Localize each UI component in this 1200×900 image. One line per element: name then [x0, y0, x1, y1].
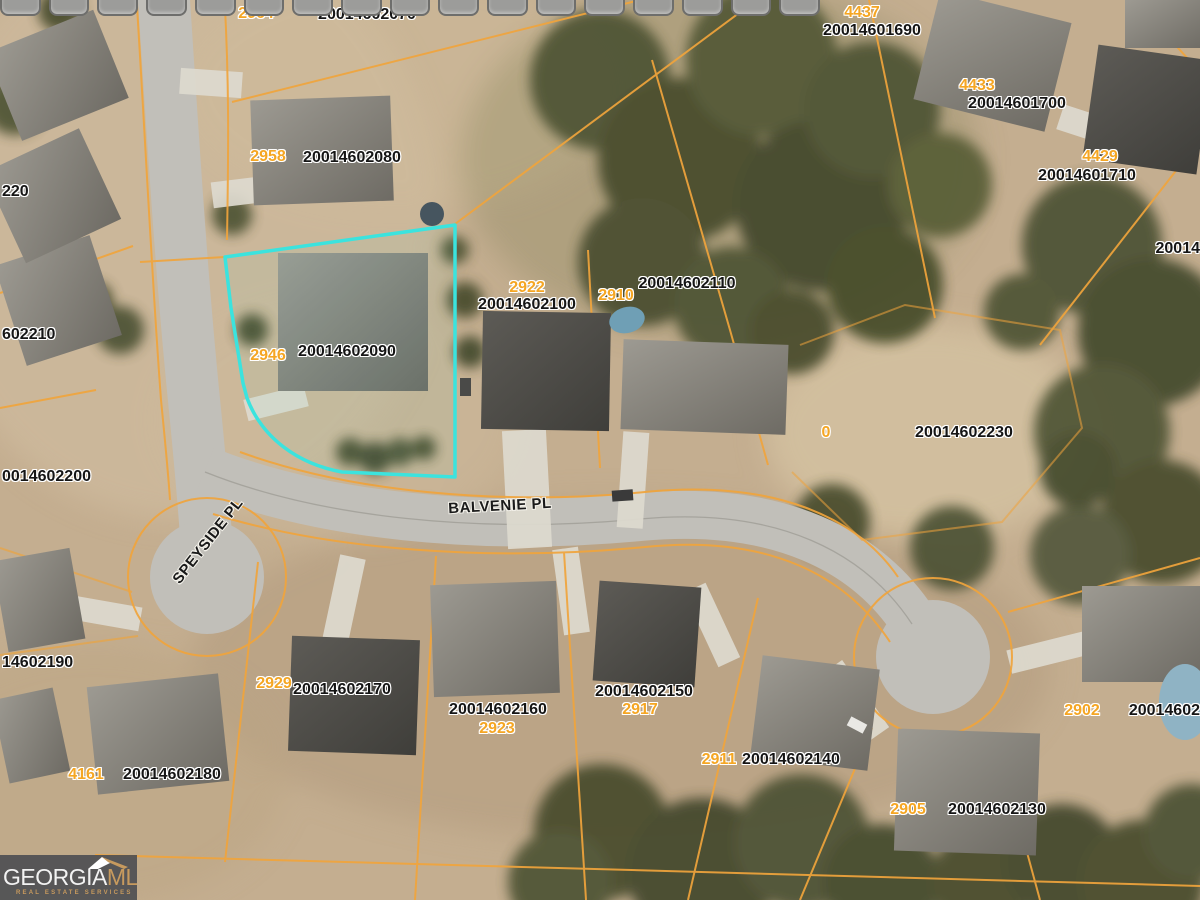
- toolbar-button[interactable]: [731, 0, 772, 16]
- toolbar-button[interactable]: [779, 0, 820, 16]
- toolbar-button[interactable]: [487, 0, 528, 16]
- parcel-id-label: 20014602150: [595, 684, 693, 700]
- parcel-id-label: 20014601710: [1038, 168, 1136, 184]
- house-number-label: 2911: [702, 752, 737, 768]
- toolbar-button[interactable]: [146, 0, 187, 16]
- toolbar-button[interactable]: [0, 0, 41, 16]
- street-name-label: BALVENIE PL: [448, 496, 552, 516]
- parcel-id-label: 20014601690: [823, 23, 921, 39]
- toolbar-button[interactable]: [341, 0, 382, 16]
- toolbar-button[interactable]: [195, 0, 236, 16]
- house-number-label: 2922: [509, 280, 545, 296]
- house-number-label: 2929: [256, 676, 292, 692]
- toolbar-button[interactable]: [390, 0, 431, 16]
- georgiamls-logo: GEORGIAMLS REAL ESTATE SERVICES: [0, 855, 137, 900]
- house-number-label: 2917: [622, 702, 658, 718]
- parcel-id-label: 20014602170: [293, 682, 391, 698]
- toolbar-button[interactable]: [633, 0, 674, 16]
- toolbar-button[interactable]: [49, 0, 90, 16]
- street-name-label: SPEYSIDE PL: [170, 495, 246, 586]
- parcel-id-label: 20014602110: [639, 276, 736, 292]
- parcel-id-label: 20014602140: [742, 752, 840, 768]
- toolbar-button[interactable]: [244, 0, 285, 16]
- parcel-id-label: 20014: [1156, 241, 1200, 257]
- house-number-label: 4161: [68, 767, 104, 783]
- house-number-label: 2946: [250, 348, 286, 364]
- house-number-label: 2905: [890, 802, 926, 818]
- parcel-id-label: 20014602: [1129, 703, 1200, 719]
- parcel-id-label: 14602190: [2, 655, 73, 671]
- parcel-id-label: 20014602080: [303, 150, 401, 166]
- toolbar-button[interactable]: [682, 0, 723, 16]
- logo-tagline: REAL ESTATE SERVICES: [16, 890, 133, 896]
- house-number-label: 0: [822, 425, 831, 441]
- parcel-id-label: 20014602230: [915, 425, 1013, 441]
- house-number-label: 4433: [959, 78, 995, 94]
- toolbar-button[interactable]: [584, 0, 625, 16]
- parcel-id-label: 20014602180: [123, 767, 221, 783]
- house-number-label: 2902: [1064, 703, 1100, 719]
- house-number-label: 4437: [844, 5, 880, 21]
- toolbar-button[interactable]: [536, 0, 577, 16]
- toolbar-button[interactable]: [438, 0, 479, 16]
- parcel-id-label: 20014602130: [948, 802, 1046, 818]
- house-number-label: 2923: [479, 721, 515, 737]
- parcel-id-label: 20014601700: [968, 96, 1066, 112]
- parcel-id-label: 602210: [2, 327, 55, 343]
- parcel-id-label: 0014602200: [2, 469, 91, 485]
- house-number-label: 2958: [250, 149, 286, 165]
- parcel-id-label: 220: [2, 184, 29, 200]
- map-viewport[interactable]: 2001460207020014602080200146016902001460…: [0, 0, 1200, 900]
- parcel-id-label: 20014602090: [298, 344, 396, 360]
- parcel-id-label: 20014602160: [449, 702, 547, 718]
- toolbar-strip: [0, 0, 820, 14]
- map-labels: 2001460207020014602080200146016902001460…: [0, 0, 1200, 900]
- toolbar-button[interactable]: [97, 0, 138, 16]
- logo-roof-icon: [88, 857, 128, 869]
- parcel-id-label: 20014602100: [478, 297, 576, 313]
- toolbar-button[interactable]: [292, 0, 333, 16]
- house-number-label: 2910: [598, 288, 634, 304]
- house-number-label: 4429: [1082, 149, 1118, 165]
